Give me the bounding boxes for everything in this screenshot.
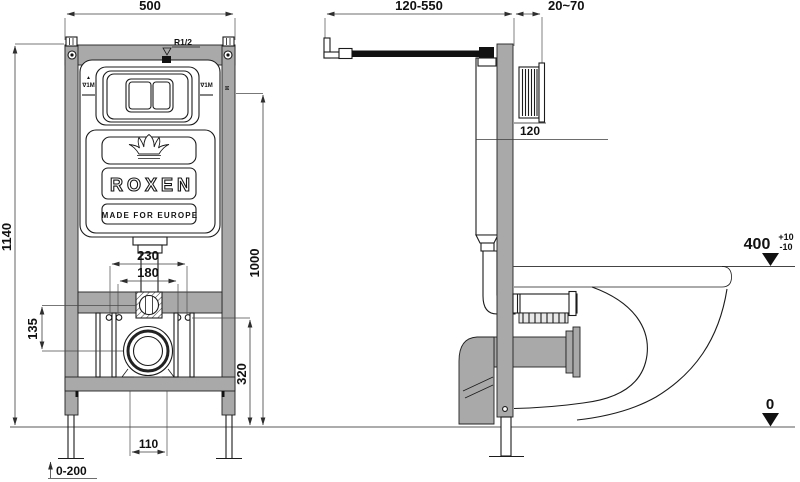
side-view: 120-550 20~70	[324, 0, 795, 457]
top-bolt-right	[224, 51, 232, 59]
dim-height-1140: 1140	[0, 44, 64, 425]
drain-flange-inner	[566, 331, 573, 373]
front-view: 500 1140	[0, 0, 263, 479]
dim-120-550-label: 120-550	[395, 0, 443, 13]
bracket-rod	[352, 51, 481, 58]
dim-bracket-range: 120-550	[325, 0, 514, 46]
drain-flange-outer	[573, 327, 580, 377]
drain-elbow	[459, 337, 494, 424]
datum-400-minus: -10	[779, 242, 792, 252]
dim-180-label: 180	[137, 265, 159, 280]
datum-triangle-rim	[762, 253, 779, 266]
inlet-label: R1/2	[174, 37, 192, 47]
installation-frame-drawing: 500 1140	[0, 0, 800, 482]
dim-110-label: 110	[139, 437, 159, 451]
dim-320-label: 320	[234, 363, 249, 385]
drain-pipework	[459, 327, 580, 424]
datum-rim-level: 400 +10 -10	[744, 232, 794, 266]
flush-connection-pipe	[513, 292, 577, 324]
dim-height-label: 1140	[0, 223, 14, 251]
frame-left-rail	[65, 45, 78, 415]
frame-mark: M	[223, 86, 229, 90]
frame-right-rail	[222, 45, 235, 415]
top-bolt-left	[68, 51, 76, 59]
datum-floor-level: 0	[762, 396, 779, 427]
datum-0-label: 0	[766, 396, 774, 413]
datum-400-plus: +10	[778, 232, 793, 242]
hanger-tab-left	[66, 37, 77, 46]
hanger-tab-right	[223, 37, 234, 46]
frame-side-bar	[497, 44, 513, 417]
dim-width-label: 500	[139, 0, 161, 13]
frame-bottom-rail	[65, 377, 235, 391]
inlet-valve	[162, 56, 171, 63]
brand-tagline: MADE FOR EUROPE	[102, 211, 199, 220]
dim-230-label: 230	[137, 248, 159, 263]
brand-logo-text: ROXEN	[110, 175, 194, 195]
dim-20-70-label: 20~70	[548, 0, 585, 13]
dim-outlet-110: 110	[130, 391, 167, 456]
drain-outlet	[122, 327, 174, 378]
flush-outlet-fitting	[136, 292, 162, 318]
datum-triangle-floor	[762, 413, 779, 427]
wall-bracket	[324, 38, 494, 60]
dim-1000-label: 1000	[247, 249, 262, 278]
actuator-flange	[539, 63, 545, 122]
dim-drain-320: 320	[192, 318, 250, 425]
datum-400-label: 400	[744, 236, 771, 253]
dim-120-label: 120	[520, 124, 540, 138]
dim-foot-adjust: 0-200	[48, 462, 97, 479]
level-mark-arrow: ▲	[86, 75, 91, 81]
flush-actuator-housing	[519, 63, 545, 122]
dim-width-500: 500	[65, 0, 235, 40]
dim-0-200-label: 0-200	[56, 464, 87, 478]
cistern-neck-upper	[133, 237, 167, 245]
level-mark-left: ∇1M	[82, 82, 95, 89]
dim-135-label: 135	[25, 318, 40, 340]
level-mark-right: ∇1M	[200, 82, 213, 89]
threaded-rod	[519, 313, 568, 323]
technical-drawing-page: 500 1140	[0, 0, 800, 482]
side-bar-bolt	[503, 407, 508, 412]
